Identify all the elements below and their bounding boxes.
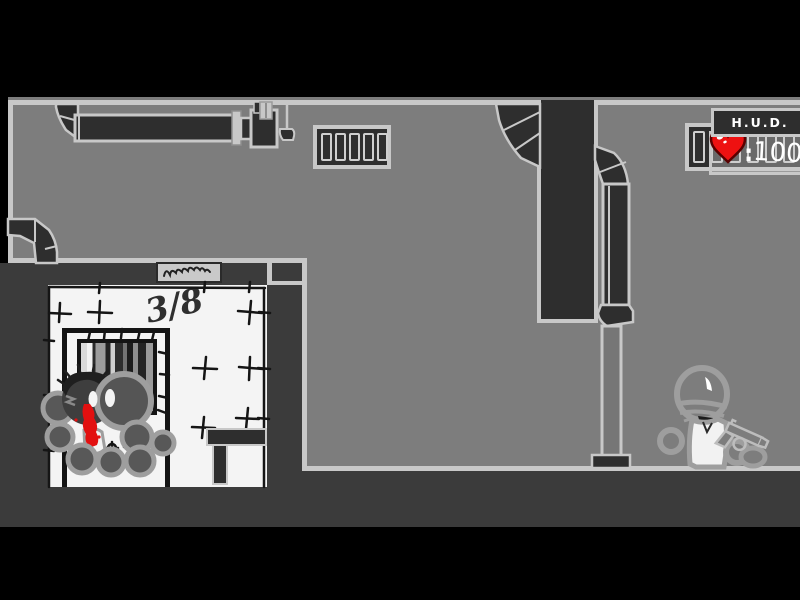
cell-bench xyxy=(207,429,266,484)
pipe-elbow xyxy=(598,305,633,326)
crowd-behind-cell-door[interactable] xyxy=(43,365,174,475)
scene-drawing-layer xyxy=(0,0,800,600)
duct-top-left xyxy=(56,102,294,147)
duct-pillar-left xyxy=(496,104,540,167)
wall-pipe xyxy=(602,326,621,456)
enemy-soldier[interactable] xyxy=(660,368,770,467)
hud-title-text: H.U.D. xyxy=(731,115,788,130)
vent-slat xyxy=(693,131,705,163)
pipe-base xyxy=(592,455,630,468)
hud-health-value: 100 xyxy=(752,137,800,170)
duct-bottom-left xyxy=(8,219,57,263)
eye xyxy=(105,389,115,407)
hud-title: H.U.D. xyxy=(711,108,800,137)
game-canvas[interactable]: 3/8 xyxy=(0,0,800,600)
duct-flange xyxy=(232,111,241,145)
duct-pillar-right-and-pipe xyxy=(592,146,633,468)
arm-ring xyxy=(660,430,682,452)
